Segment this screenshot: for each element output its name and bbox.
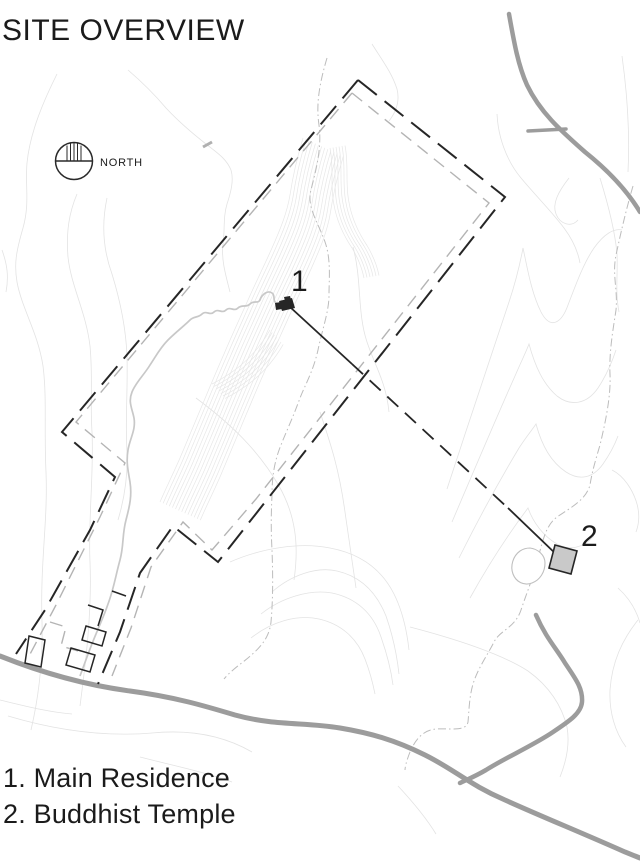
legend-item-buddhist-temple: 2. Buddhist Temple — [3, 796, 236, 832]
northeast-road-branch — [528, 129, 566, 131]
entrance-compound-structures — [25, 591, 126, 672]
stream-lines-layer — [224, 58, 633, 770]
legend-item-main-residence: 1. Main Residence — [3, 760, 236, 796]
legend: 1. Main Residence 2. Buddhist Temple — [3, 760, 236, 832]
marker-2-label: 2 — [581, 520, 598, 553]
driveway-path — [80, 292, 281, 676]
pond — [512, 548, 545, 584]
page-title: SITE OVERVIEW — [2, 14, 245, 48]
northeast-road — [509, 14, 640, 212]
marker-1-label: 1 — [291, 265, 308, 298]
site-plan-map: NORTH 1 2 — [0, 0, 640, 866]
north-indicator: NORTH — [56, 143, 143, 180]
north-label: NORTH — [100, 157, 143, 169]
steep-slope-contour-band — [160, 138, 379, 520]
north-arrow-icon — [56, 143, 93, 180]
buddhist-temple-building — [549, 545, 577, 574]
sight-line — [290, 307, 558, 556]
contour-lines-layer — [0, 44, 640, 834]
temple-access-road — [460, 615, 582, 783]
site-overview-page: { "title": "SITE OVERVIEW", "north": { "… — [0, 0, 640, 866]
east-stream — [405, 186, 633, 770]
